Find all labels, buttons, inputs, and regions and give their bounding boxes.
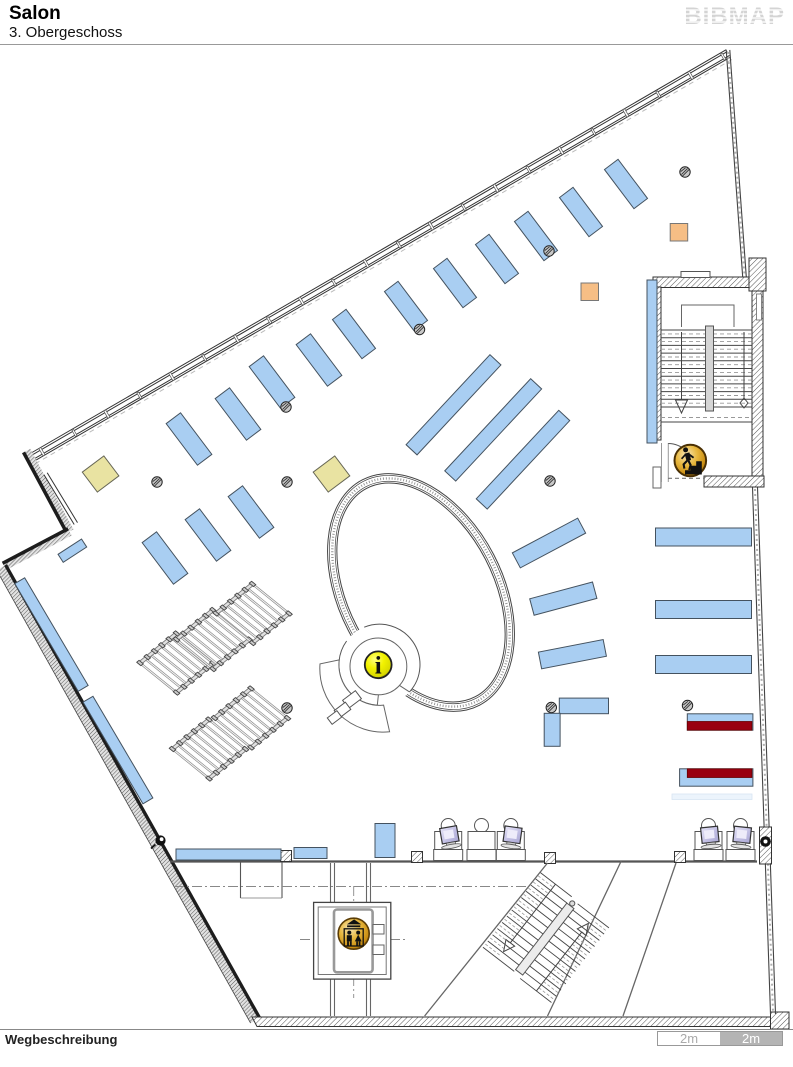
svg-text:i: i xyxy=(375,652,382,679)
